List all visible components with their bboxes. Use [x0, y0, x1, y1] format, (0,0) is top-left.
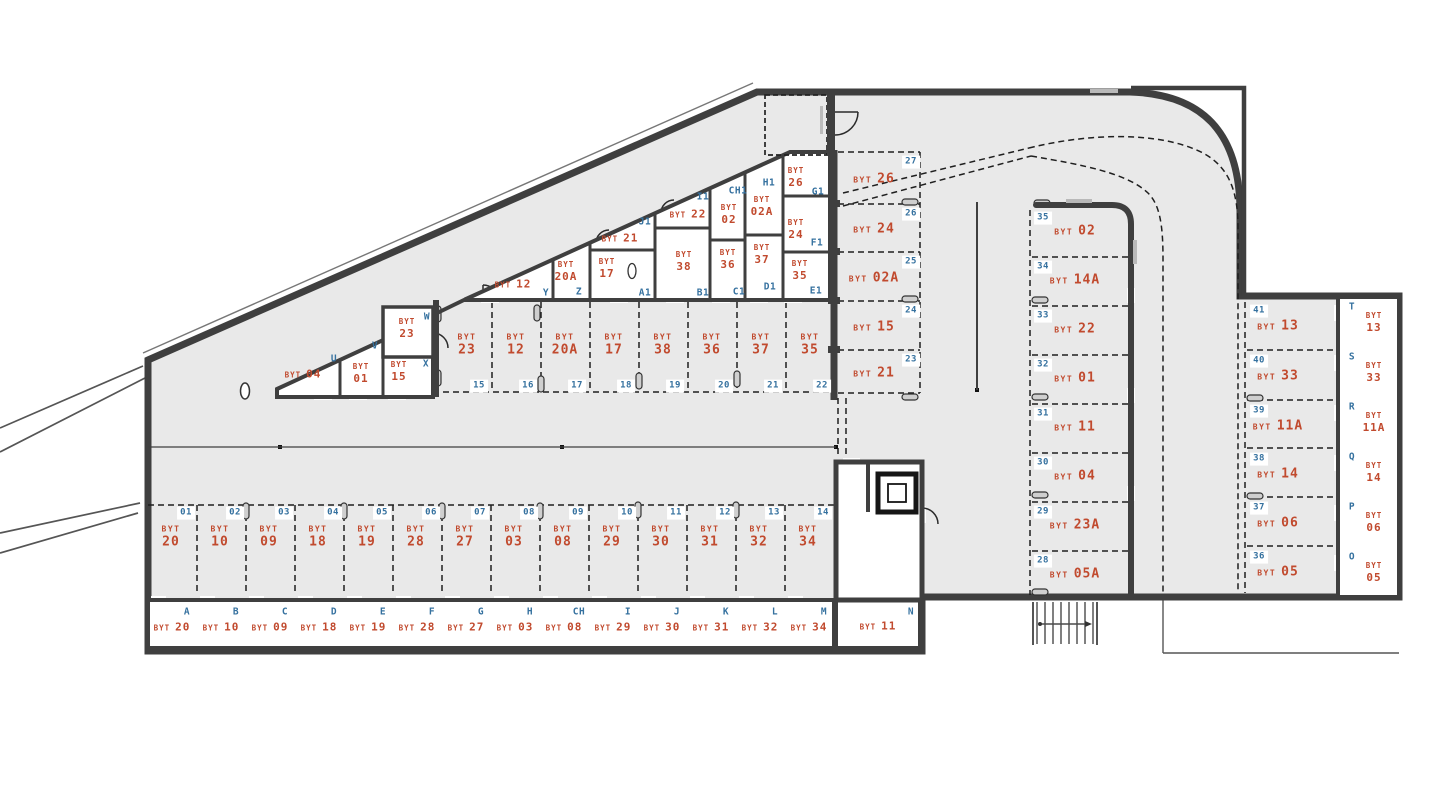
cell-reference-letter: S [1349, 352, 1355, 362]
unit-label: BYT12 [495, 279, 532, 290]
parking-spot-number: 38 [1250, 453, 1268, 466]
unit-prefix: BYT [162, 526, 181, 534]
unit-number: 11 [881, 621, 896, 632]
unit-prefix: BYT [252, 625, 269, 633]
cell-reference-letter: L [772, 607, 778, 617]
unit-prefix: BYT [849, 275, 868, 283]
unit-number: 31 [714, 622, 729, 633]
unit-label: BYT02A [751, 196, 774, 217]
parking-spot-number: 21 [764, 380, 782, 393]
unit-label: BYT27 [456, 526, 475, 549]
parking-spot-number: 34 [1034, 261, 1052, 274]
unit-number: 20A [552, 344, 578, 357]
unit-number: 36 [703, 344, 721, 357]
unit-prefix: BYT [652, 526, 671, 534]
unit-number: 06 [1366, 521, 1381, 532]
unit-number: 24 [877, 223, 895, 236]
unit-label: BYT10 [211, 526, 230, 549]
cell-reference-letter: C1 [733, 287, 745, 297]
unit-label: BYT20A [552, 334, 578, 357]
unit-number: 33 [1366, 371, 1381, 382]
cell-reference-letter: B1 [697, 288, 709, 298]
unit-prefix: BYT [391, 361, 408, 369]
cell-reference-letter: J1 [639, 217, 651, 227]
unit-label: BYT12 [507, 334, 526, 357]
unit-number: 05A [1074, 568, 1100, 581]
unit-prefix: BYT [1054, 376, 1073, 384]
unit-number: 28 [407, 536, 425, 549]
unit-label: BYT22 [1054, 323, 1096, 336]
unit-label: BYT24 [853, 223, 895, 236]
cell-reference-letter: V [372, 341, 378, 351]
unit-label: BYT23A [1050, 519, 1100, 532]
unit-prefix: BYT [301, 625, 318, 633]
unit-prefix: BYT [358, 526, 377, 534]
unit-number: 08 [567, 622, 582, 633]
parking-spot-number: 17 [568, 380, 586, 393]
unit-prefix: BYT [1050, 572, 1069, 580]
unit-prefix: BYT [1257, 521, 1276, 529]
unit-number: 14A [1074, 274, 1100, 287]
unit-label: BYT18 [309, 526, 328, 549]
unit-prefix: BYT [853, 370, 872, 378]
unit-prefix: BYT [799, 526, 818, 534]
unit-label: BYT13 [1257, 320, 1299, 333]
unit-number: 32 [750, 536, 768, 549]
unit-prefix: BYT [260, 526, 279, 534]
cell-reference-letter: J [674, 607, 680, 617]
unit-label: BYT37 [752, 334, 771, 357]
unit-prefix: BYT [788, 167, 805, 175]
unit-label: BYT09 [252, 622, 289, 633]
parking-spot-number: 03 [275, 507, 293, 520]
unit-number: 37 [754, 253, 769, 264]
parking-spot-number: 08 [520, 507, 538, 520]
unit-number: 23 [399, 327, 414, 338]
parking-spot-number: 04 [324, 507, 342, 520]
unit-number: 26 [788, 176, 803, 187]
parking-spot-number: 02 [226, 507, 244, 520]
unit-prefix: BYT [1257, 324, 1276, 332]
unit-prefix: BYT [556, 334, 575, 342]
floor-plan: 15BYT2316BYT1217BYT20A18BYT1719BYT3820BY… [0, 0, 1455, 798]
parking-spot-number: 05 [373, 507, 391, 520]
cell-reference-letter: A1 [639, 288, 651, 298]
parking-spot-number: 35 [1034, 212, 1052, 225]
parking-spot-number: 37 [1250, 502, 1268, 515]
unit-number: 08 [554, 536, 572, 549]
cell-reference-letter: G [478, 607, 484, 617]
unit-number: 02 [721, 213, 736, 224]
parking-spot-number: 28 [1034, 555, 1052, 568]
unit-label: BYT14 [1257, 468, 1299, 481]
cell-reference-letter: H [527, 607, 533, 617]
unit-number: 09 [260, 536, 278, 549]
unit-prefix: BYT [554, 526, 573, 534]
cell-reference-letter: O [1349, 552, 1355, 562]
unit-label: BYT34 [791, 622, 828, 633]
unit-label: BYT20 [162, 526, 181, 549]
unit-prefix: BYT [860, 624, 877, 632]
unit-number: 21 [623, 233, 638, 244]
unit-label: BYT38 [654, 334, 673, 357]
unit-label: BYT32 [750, 526, 769, 549]
unit-label: BYT38 [676, 251, 693, 272]
cell-reference-letter: U [331, 354, 337, 364]
unit-prefix: BYT [1366, 512, 1383, 520]
unit-label: BYT13 [1366, 312, 1383, 333]
unit-number: 20A [555, 270, 578, 281]
unit-prefix: BYT [742, 625, 759, 633]
unit-prefix: BYT [399, 625, 416, 633]
unit-prefix: BYT [788, 219, 805, 227]
cell-reference-letter: X [423, 359, 429, 369]
unit-prefix: BYT [558, 261, 575, 269]
unit-label: BYT05A [1050, 568, 1100, 581]
unit-prefix: BYT [602, 236, 619, 244]
unit-label: BYT02A [849, 271, 899, 284]
parking-spot-number: 09 [569, 507, 587, 520]
unit-label: BYT04 [1054, 470, 1096, 483]
parking-spot-number: 30 [1034, 457, 1052, 470]
parking-spot-number: 32 [1034, 359, 1052, 372]
unit-label: BYT35 [792, 260, 809, 281]
cell-reference-letter: E1 [810, 286, 822, 296]
unit-prefix: BYT [1366, 312, 1383, 320]
unit-prefix: BYT [754, 244, 771, 252]
cell-reference-letter: C [282, 607, 288, 617]
unit-number: 10 [211, 536, 229, 549]
parking-spot-number: 20 [715, 380, 733, 393]
unit-prefix: BYT [1257, 374, 1276, 382]
unit-number: 03 [505, 536, 523, 549]
parking-spot-number: 07 [471, 507, 489, 520]
unit-number: 34 [812, 622, 827, 633]
cell-reference-letter: CH [573, 607, 585, 617]
unit-label: BYT28 [407, 526, 426, 549]
parking-spot-number: 18 [617, 380, 635, 393]
unit-prefix: BYT [693, 625, 710, 633]
parking-spot-number: 27 [902, 156, 920, 169]
unit-number: 32 [763, 622, 778, 633]
unit-number: 21 [877, 366, 895, 379]
unit-number: 05 [1366, 571, 1381, 582]
unit-prefix: BYT [750, 526, 769, 534]
unit-label: BYT11A [1363, 412, 1386, 433]
unit-number: 33 [1281, 370, 1299, 383]
unit-label: BYT06 [1366, 512, 1383, 533]
cell-reference-letter: M [821, 607, 827, 617]
unit-number: 27 [456, 536, 474, 549]
unit-prefix: BYT [720, 249, 737, 257]
cell-reference-letter: D1 [764, 282, 776, 292]
unit-prefix: BYT [353, 363, 370, 371]
parking-spot-number: 24 [902, 305, 920, 318]
unit-number: 03 [518, 622, 533, 633]
unit-number: 14 [1281, 468, 1299, 481]
plan-labels: 15BYT2316BYT1217BYT20A18BYT1719BYT3820BY… [0, 0, 1455, 798]
unit-label: BYT09 [260, 526, 279, 549]
unit-prefix: BYT [603, 526, 622, 534]
parking-spot-number: 16 [519, 380, 537, 393]
unit-number: 18 [322, 622, 337, 633]
unit-number: 34 [799, 536, 817, 549]
unit-label: BYT03 [505, 526, 524, 549]
unit-label: BYT23 [458, 334, 477, 357]
unit-number: 38 [676, 260, 691, 271]
unit-number: 13 [1281, 320, 1299, 333]
unit-prefix: BYT [721, 204, 738, 212]
unit-label: BYT17 [605, 334, 624, 357]
unit-number: 12 [516, 279, 531, 290]
parking-spot-number: 13 [765, 507, 783, 520]
unit-label: BYT14 [1366, 462, 1383, 483]
unit-prefix: BYT [853, 177, 872, 185]
unit-number: 31 [701, 536, 719, 549]
cell-reference-letter: F1 [811, 238, 823, 248]
unit-label: BYT36 [720, 249, 737, 270]
unit-label: BYT21 [853, 366, 895, 379]
unit-prefix: BYT [605, 334, 624, 342]
unit-number: 18 [309, 536, 327, 549]
unit-label: BYT30 [652, 526, 671, 549]
cell-reference-letter: R [1349, 402, 1355, 412]
unit-number: 02A [751, 205, 774, 216]
unit-prefix: BYT [792, 260, 809, 268]
unit-number: 15 [877, 320, 895, 333]
unit-number: 23 [458, 344, 476, 357]
unit-label: BYT22 [670, 209, 707, 220]
unit-number: 26 [877, 173, 895, 186]
unit-number: 11A [1277, 420, 1303, 433]
unit-prefix: BYT [154, 625, 171, 633]
unit-prefix: BYT [1054, 474, 1073, 482]
unit-label: BYT29 [595, 622, 632, 633]
parking-spot-number: 31 [1034, 408, 1052, 421]
unit-prefix: BYT [507, 334, 526, 342]
unit-prefix: BYT [1050, 278, 1069, 286]
cell-reference-letter: F [429, 607, 435, 617]
unit-number: 15 [391, 370, 406, 381]
unit-label: BYT30 [644, 622, 681, 633]
unit-prefix: BYT [399, 318, 416, 326]
unit-label: BYT34 [799, 526, 818, 549]
unit-label: BYT03 [497, 622, 534, 633]
unit-prefix: BYT [448, 625, 465, 633]
unit-number: 30 [665, 622, 680, 633]
unit-prefix: BYT [1054, 425, 1073, 433]
parking-spot-number: 25 [902, 256, 920, 269]
unit-number: 01 [353, 372, 368, 383]
unit-number: 23A [1074, 519, 1100, 532]
unit-label: BYT15 [391, 361, 408, 382]
unit-label: BYT01 [1054, 372, 1096, 385]
parking-spot-number: 15 [470, 380, 488, 393]
unit-label: BYT05 [1366, 562, 1383, 583]
unit-label: BYT32 [742, 622, 779, 633]
unit-label: BYT08 [546, 622, 583, 633]
cell-reference-letter: P [1349, 502, 1355, 512]
unit-number: 37 [752, 344, 770, 357]
unit-label: BYT19 [350, 622, 387, 633]
unit-label: BYT29 [603, 526, 622, 549]
unit-number: 29 [616, 622, 631, 633]
unit-label: BYT26 [788, 167, 805, 188]
unit-number: 22 [691, 209, 706, 220]
unit-number: 01 [1078, 372, 1096, 385]
unit-number: 17 [599, 267, 614, 278]
unit-number: 24 [788, 228, 803, 239]
unit-number: 38 [654, 344, 672, 357]
unit-label: BYT31 [701, 526, 720, 549]
parking-spot-number: 26 [902, 208, 920, 221]
cell-reference-letter: K [723, 607, 729, 617]
cell-reference-letter: B [233, 607, 239, 617]
unit-prefix: BYT [495, 282, 512, 290]
unit-label: BYT04 [285, 369, 322, 380]
parking-spot-number: 22 [813, 380, 831, 393]
unit-label: BYT15 [853, 320, 895, 333]
parking-spot-number: 29 [1034, 506, 1052, 519]
unit-number: 11A [1363, 421, 1386, 432]
unit-label: BYT11 [1054, 421, 1096, 434]
unit-prefix: BYT [801, 334, 820, 342]
unit-prefix: BYT [1257, 472, 1276, 480]
parking-spot-number: 19 [666, 380, 684, 393]
unit-prefix: BYT [1366, 412, 1383, 420]
unit-label: BYT23 [399, 318, 416, 339]
unit-label: BYT02 [721, 204, 738, 225]
unit-label: BYT27 [448, 622, 485, 633]
unit-number: 30 [652, 536, 670, 549]
unit-prefix: BYT [285, 372, 302, 380]
unit-number: 27 [469, 622, 484, 633]
parking-spot-number: 01 [177, 507, 195, 520]
unit-prefix: BYT [1253, 424, 1272, 432]
unit-label: BYT02 [1054, 225, 1096, 238]
unit-prefix: BYT [1366, 462, 1383, 470]
unit-number: 14 [1366, 471, 1381, 482]
unit-number: 20 [175, 622, 190, 633]
unit-label: BYT26 [853, 173, 895, 186]
cell-reference-letter: A [184, 607, 190, 617]
parking-spot-number: 23 [902, 354, 920, 367]
parking-spot-number: 10 [618, 507, 636, 520]
unit-number: 29 [603, 536, 621, 549]
unit-number: 12 [507, 344, 525, 357]
unit-label: BYT20A [555, 261, 578, 282]
parking-spot-number: 33 [1034, 310, 1052, 323]
unit-number: 35 [801, 344, 819, 357]
parking-spot-number: 11 [667, 507, 685, 520]
cell-reference-letter: CH1 [729, 186, 748, 196]
unit-prefix: BYT [595, 625, 612, 633]
unit-prefix: BYT [1366, 562, 1383, 570]
unit-number: 11 [1078, 421, 1096, 434]
parking-spot-number: 40 [1250, 355, 1268, 368]
unit-number: 02 [1078, 225, 1096, 238]
unit-prefix: BYT [407, 526, 426, 534]
unit-prefix: BYT [211, 526, 230, 534]
unit-prefix: BYT [546, 625, 563, 633]
unit-number: 17 [605, 344, 623, 357]
unit-number: 02A [873, 271, 899, 284]
unit-prefix: BYT [1054, 229, 1073, 237]
cell-reference-letter: H1 [763, 178, 775, 188]
unit-prefix: BYT [853, 324, 872, 332]
unit-prefix: BYT [599, 258, 616, 266]
unit-prefix: BYT [670, 212, 687, 220]
unit-prefix: BYT [1054, 327, 1073, 335]
unit-label: BYT20 [154, 622, 191, 633]
unit-label: BYT10 [203, 622, 240, 633]
cell-reference-letter: W [424, 312, 430, 322]
unit-number: 19 [371, 622, 386, 633]
unit-label: BYT33 [1366, 362, 1383, 383]
parking-spot-number: 12 [716, 507, 734, 520]
unit-label: BYT21 [602, 233, 639, 244]
unit-prefix: BYT [203, 625, 220, 633]
cell-reference-letter: E [380, 607, 386, 617]
unit-prefix: BYT [309, 526, 328, 534]
unit-number: 13 [1366, 321, 1381, 332]
unit-number: 10 [224, 622, 239, 633]
unit-prefix: BYT [1257, 570, 1276, 578]
unit-prefix: BYT [791, 625, 808, 633]
cell-reference-letter: T [1349, 302, 1355, 312]
unit-number: 06 [1281, 517, 1299, 530]
unit-label: BYT37 [754, 244, 771, 265]
unit-number: 28 [420, 622, 435, 633]
unit-prefix: BYT [853, 227, 872, 235]
parking-spot-number: 41 [1250, 305, 1268, 318]
unit-prefix: BYT [703, 334, 722, 342]
unit-prefix: BYT [505, 526, 524, 534]
unit-number: 09 [273, 622, 288, 633]
unit-label: BYT17 [599, 258, 616, 279]
unit-number: 36 [720, 258, 735, 269]
unit-prefix: BYT [497, 625, 514, 633]
cell-reference-letter: Q [1349, 452, 1355, 462]
unit-number: 35 [792, 269, 807, 280]
parking-spot-number: 14 [814, 507, 832, 520]
unit-prefix: BYT [752, 334, 771, 342]
unit-label: BYT11A [1253, 420, 1303, 433]
unit-prefix: BYT [701, 526, 720, 534]
cell-reference-letter: G1 [812, 187, 824, 197]
unit-label: BYT18 [301, 622, 338, 633]
unit-label: BYT06 [1257, 517, 1299, 530]
unit-label: BYT36 [703, 334, 722, 357]
cell-reference-letter: N [908, 607, 914, 617]
parking-spot-number: 06 [422, 507, 440, 520]
unit-label: BYT33 [1257, 370, 1299, 383]
unit-label: BYT28 [399, 622, 436, 633]
unit-label: BYT14A [1050, 274, 1100, 287]
unit-prefix: BYT [754, 196, 771, 204]
parking-spot-number: 36 [1250, 551, 1268, 564]
unit-prefix: BYT [1050, 523, 1069, 531]
unit-number: 04 [306, 369, 321, 380]
cell-reference-letter: Y [543, 288, 549, 298]
unit-label: BYT24 [788, 219, 805, 240]
parking-spot-number: 39 [1250, 405, 1268, 418]
unit-label: BYT11 [860, 621, 897, 632]
unit-label: BYT01 [353, 363, 370, 384]
cell-reference-letter: D [331, 607, 337, 617]
unit-prefix: BYT [456, 526, 475, 534]
unit-label: BYT05 [1257, 566, 1299, 579]
